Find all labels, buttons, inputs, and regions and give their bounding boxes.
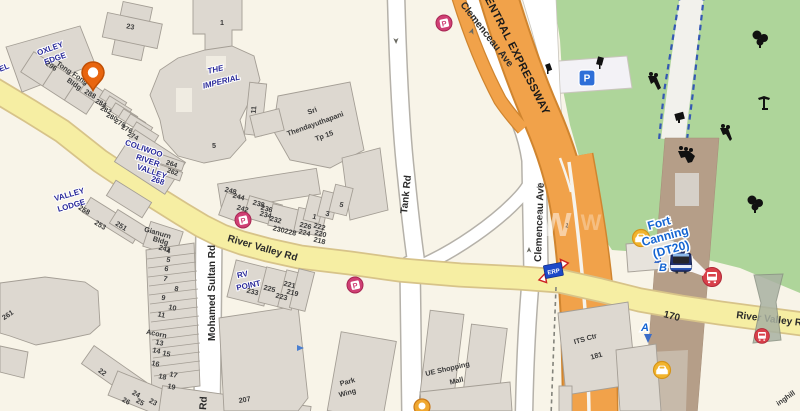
svg-text:Rd: Rd xyxy=(198,396,210,410)
svg-text:P: P xyxy=(584,74,591,85)
svg-text:1: 1 xyxy=(220,18,224,27)
svg-text:B: B xyxy=(659,262,667,274)
svg-text:Mohamed Sultan Rd: Mohamed Sultan Rd xyxy=(207,245,218,341)
svg-text:23: 23 xyxy=(126,21,135,31)
svg-text:A: A xyxy=(640,322,649,334)
svg-text:5: 5 xyxy=(212,141,216,150)
svg-text:11: 11 xyxy=(249,105,259,114)
svg-text:W: W xyxy=(581,210,602,235)
